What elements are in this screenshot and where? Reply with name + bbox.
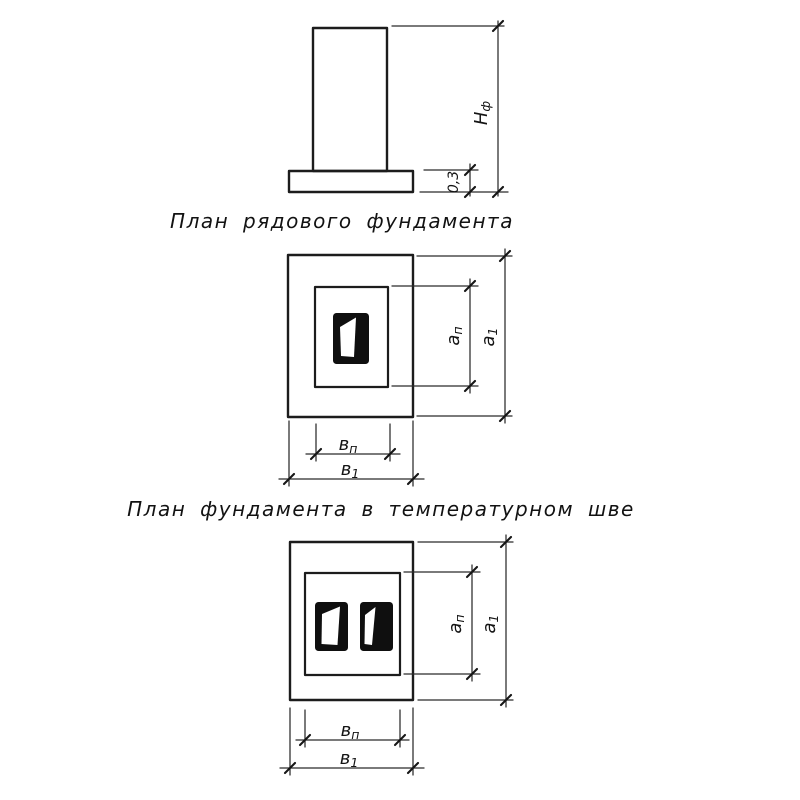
dim-a-outer-label: а1 <box>479 615 501 634</box>
socket-opening-right <box>362 604 392 650</box>
footing-thickness-label: 0,3 <box>446 171 462 193</box>
foundation-height-label: Нф <box>471 101 493 126</box>
dim-b-inner: вп <box>296 710 409 747</box>
socket-opening <box>335 315 368 363</box>
elevation-view: Нф 0,3 <box>289 21 508 197</box>
plan-double-view: ап а1 вп в1 <box>280 535 513 775</box>
dim-a-inner-label: ап <box>443 326 465 345</box>
dim-a-outer: а1 <box>417 249 512 423</box>
caption-plan-single: План рядового фундамента <box>170 209 514 233</box>
dim-a-outer-label: а1 <box>478 328 500 347</box>
dim-b-inner: вп <box>306 424 400 461</box>
dim-b-inner-label: вп <box>341 720 360 742</box>
dim-b-inner-label: вп <box>339 434 358 456</box>
column-outline <box>313 28 387 171</box>
drawing-page: Нф 0,3 План рядового фундамента ап <box>0 0 800 800</box>
caption-plan-double: План фундамента в температурном шве <box>127 497 635 521</box>
dim-a-inner: ап <box>392 279 478 393</box>
dim-b-outer-label: в1 <box>341 459 360 481</box>
foundation-drawing-canvas: Нф 0,3 План рядового фундамента ап <box>0 0 800 800</box>
footing-plan-outline <box>290 542 413 700</box>
footing-outline <box>289 171 413 192</box>
plan-single-view: ап а1 вп в1 <box>279 249 512 486</box>
dim-b-outer-label: в1 <box>340 748 359 770</box>
dim-a-inner-label: ап <box>445 614 467 633</box>
dim-a-inner: ап <box>404 565 480 681</box>
socket-opening-left <box>317 604 347 650</box>
